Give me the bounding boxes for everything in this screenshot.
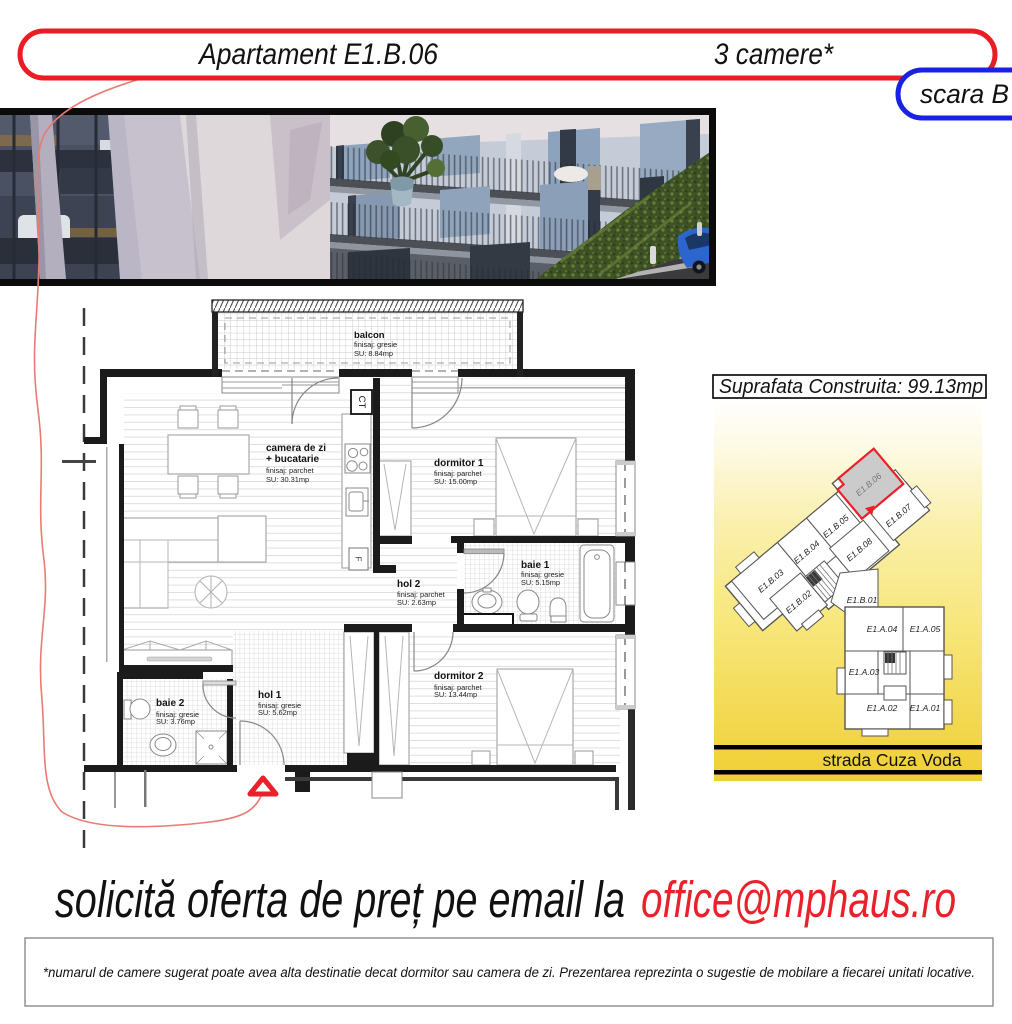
svg-text:camera de zi: camera de zi: [266, 443, 326, 454]
svg-text:solicită oferta de preț pe ema: solicită oferta de preț pe email la: [55, 871, 625, 929]
svg-text:3 camere*: 3 camere*: [714, 38, 834, 71]
svg-text:dormitor 1: dormitor 1: [434, 458, 484, 469]
svg-text:E1.A.05: E1.A.05: [910, 624, 941, 634]
svg-text:SU: 5.15mp: SU: 5.15mp: [521, 578, 560, 587]
svg-text:Apartament E1.B.06: Apartament E1.B.06: [197, 38, 438, 71]
svg-text:E1.A.02: E1.A.02: [867, 703, 898, 713]
svg-text:SU: 13.44mp: SU: 13.44mp: [434, 690, 477, 699]
svg-text:F: F: [354, 557, 363, 562]
svg-text:E1.B.01: E1.B.01: [847, 595, 878, 605]
svg-text:baie 2: baie 2: [156, 698, 185, 709]
svg-text:SU: 15.00mp: SU: 15.00mp: [434, 477, 477, 486]
svg-text:E1.A.04: E1.A.04: [867, 624, 898, 634]
svg-text:scara B: scara B: [920, 79, 1009, 109]
svg-text:Suprafata Construita: 99.13mp: Suprafata Construita: 99.13mp: [719, 375, 983, 398]
svg-text:*numarul de camere sugerat poa: *numarul de camere sugerat poate avea al…: [43, 965, 975, 980]
svg-text:finisaj: gresie: finisaj: gresie: [354, 340, 397, 349]
svg-text:SU: 8.84mp: SU: 8.84mp: [354, 349, 393, 358]
svg-text:+ bucatarie: + bucatarie: [266, 454, 320, 465]
svg-text:strada Cuza Voda: strada Cuza Voda: [822, 750, 961, 770]
svg-text:E1.A.03: E1.A.03: [849, 667, 880, 677]
svg-text:SU: 5.62mp: SU: 5.62mp: [258, 708, 297, 717]
svg-text:CT: CT: [356, 396, 367, 409]
svg-text:finisaj: parchet: finisaj: parchet: [266, 466, 314, 475]
svg-text:SU: 2.63mp: SU: 2.63mp: [397, 598, 436, 607]
svg-text:hol 2: hol 2: [397, 579, 421, 590]
svg-text:office@mphaus.ro: office@mphaus.ro: [641, 871, 956, 928]
svg-text:hol 1: hol 1: [258, 690, 282, 701]
svg-text:E1.A.01: E1.A.01: [910, 703, 941, 713]
svg-text:dormitor 2: dormitor 2: [434, 671, 484, 682]
svg-text:SU: 3.76mp: SU: 3.76mp: [156, 717, 195, 726]
svg-text:SU: 30.31mp: SU: 30.31mp: [266, 475, 309, 484]
